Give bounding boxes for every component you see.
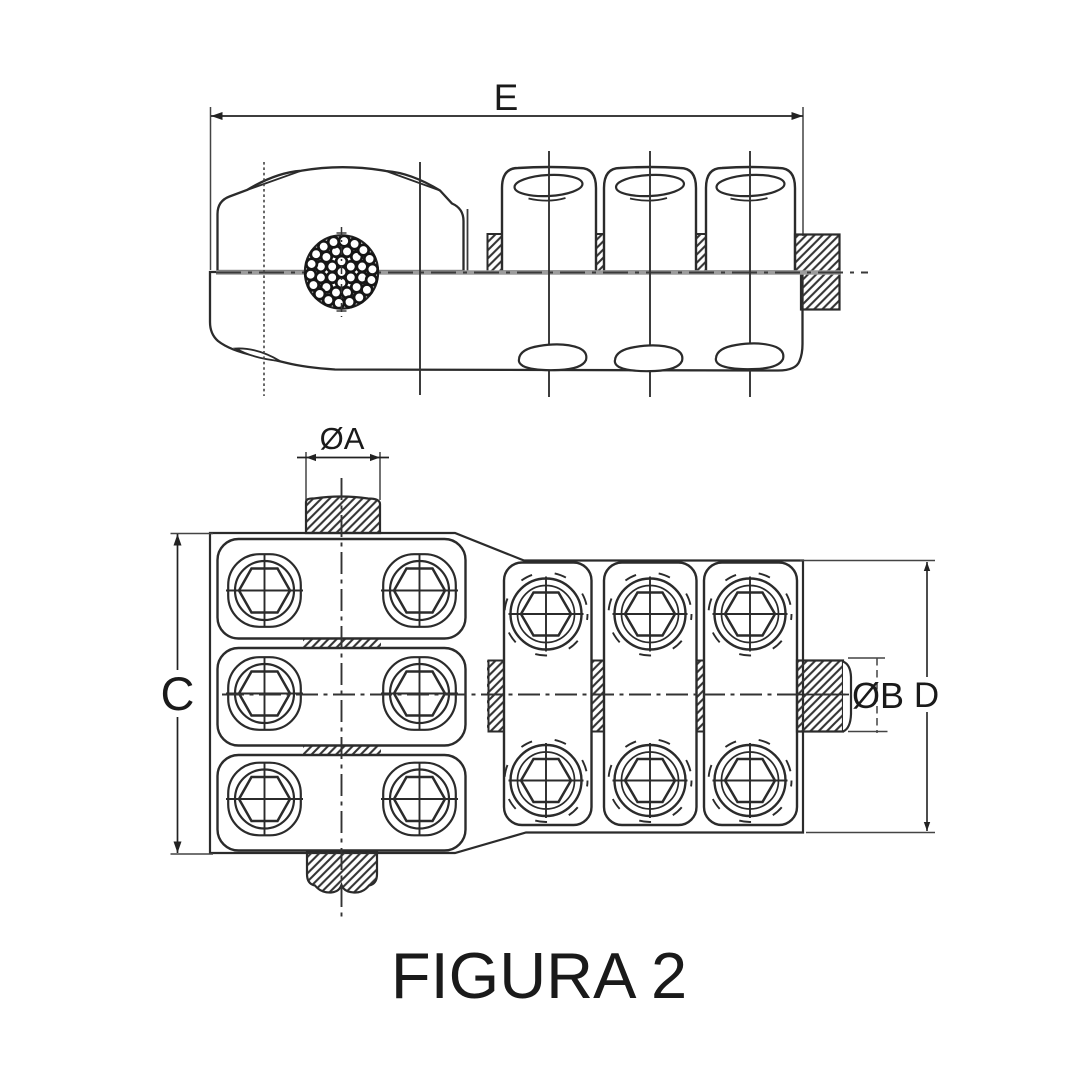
svg-text:C: C: [161, 667, 195, 720]
svg-text:ØA: ØA: [320, 421, 365, 456]
svg-text:E: E: [494, 77, 519, 118]
svg-text:ØB: ØB: [852, 675, 904, 716]
svg-text:FIGURA 2: FIGURA 2: [391, 939, 687, 1012]
svg-text:D: D: [914, 676, 939, 715]
